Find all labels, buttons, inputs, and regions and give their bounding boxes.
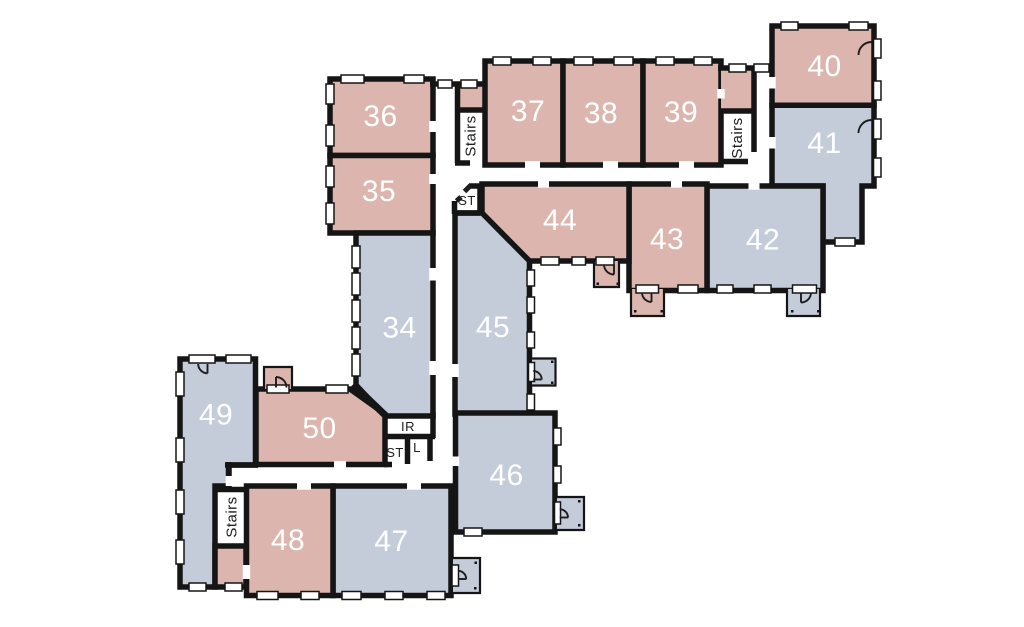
svg-text:35: 35 <box>362 175 396 208</box>
svg-text:40: 40 <box>807 50 841 83</box>
svg-text:42: 42 <box>746 224 780 257</box>
svg-text:43: 43 <box>650 223 684 256</box>
svg-text:Stairs: Stairs <box>463 115 480 156</box>
svg-text:Stairs: Stairs <box>729 117 746 158</box>
svg-text:Stairs: Stairs <box>224 496 241 537</box>
svg-text:39: 39 <box>664 96 698 129</box>
svg-text:50: 50 <box>302 412 336 445</box>
svg-text:49: 49 <box>199 399 233 432</box>
svg-text:48: 48 <box>271 524 305 557</box>
svg-text:41: 41 <box>807 127 841 160</box>
svg-text:ST: ST <box>386 445 404 460</box>
svg-text:46: 46 <box>489 459 523 492</box>
svg-text:47: 47 <box>374 525 408 558</box>
svg-text:38: 38 <box>584 97 618 130</box>
svg-text:45: 45 <box>476 311 510 344</box>
svg-text:44: 44 <box>543 204 577 237</box>
svg-text:36: 36 <box>363 100 397 133</box>
svg-text:IR: IR <box>401 419 415 434</box>
svg-text:34: 34 <box>382 312 416 345</box>
svg-text:ST: ST <box>458 193 476 208</box>
svg-text:37: 37 <box>511 95 545 128</box>
svg-text:L: L <box>413 440 421 455</box>
